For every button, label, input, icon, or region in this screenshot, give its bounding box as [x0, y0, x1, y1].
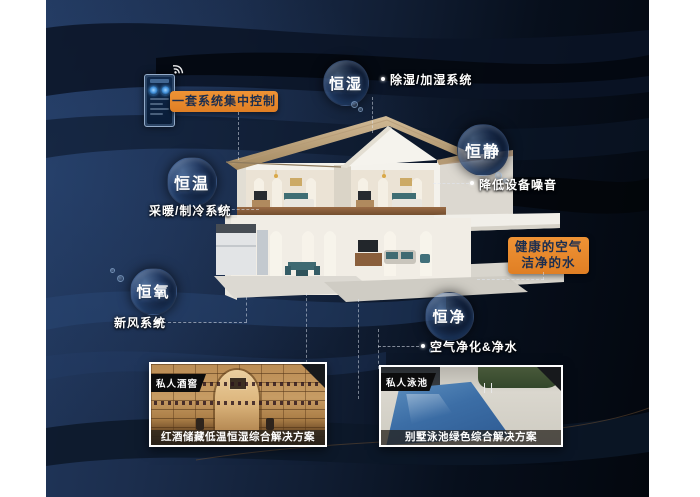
- wine-card-caption: 红酒储藏低温恒湿综合解决方案: [151, 430, 325, 445]
- bubble-label: 恒温: [174, 170, 210, 194]
- callout-purify: 空气净化&净水: [430, 338, 518, 355]
- pool-ladder: [484, 383, 492, 393]
- connector-line: [378, 329, 379, 369]
- connector-line: [433, 183, 469, 184]
- pool-card: 私人泳池 别墅泳池绿色综合解决方案: [379, 365, 563, 447]
- clean-water-line: 洁净的水: [508, 255, 589, 271]
- central-control-highlight: 一套系统集中控制: [170, 91, 278, 112]
- connector-line: [246, 297, 247, 322]
- pool-photo: 私人泳池 别墅泳池绿色综合解决方案: [381, 367, 561, 445]
- bubble-label: 恒湿: [329, 73, 363, 94]
- house-cutaway-illustration: [206, 108, 576, 323]
- connector-line: [358, 299, 359, 399]
- callout-noise: 降低设备噪音: [479, 176, 557, 193]
- connector-line: [372, 97, 373, 133]
- mini-bubble: [110, 268, 115, 273]
- pool-card-caption: 别墅泳池绿色综合解决方案: [381, 430, 561, 445]
- corner-ribbon: [537, 367, 561, 391]
- bubble-constant-purity: 恒净: [425, 292, 474, 341]
- callout-dehumidify: 除湿/加湿系统: [390, 71, 472, 88]
- wine-bottle-row: [154, 401, 321, 405]
- wine-cellar-photo: 私人酒窖 红酒储藏低温恒湿综合解决方案: [151, 364, 325, 445]
- connector-line: [477, 279, 544, 280]
- mini-bubble: [117, 275, 124, 282]
- bubble-constant-temperature: 恒温: [167, 157, 217, 207]
- bubble-label: 恒净: [432, 306, 466, 327]
- corner-ribbon: [301, 364, 325, 388]
- bubble-label: 恒氧: [136, 281, 170, 302]
- connector-line: [227, 209, 259, 210]
- phone-text-row: [150, 108, 169, 110]
- poster-stage: 一套系统集中控制 健康的空气 洁净的水 恒湿 恒静 恒温 恒氧 恒净 除湿/加湿…: [46, 0, 649, 497]
- phone-knob-left: [149, 86, 158, 95]
- phone-knob-right: [161, 86, 170, 95]
- connector-line: [378, 346, 419, 347]
- mini-bubble: [351, 101, 358, 108]
- bubble-label: 恒静: [465, 138, 501, 162]
- mini-bubble: [358, 107, 363, 112]
- phone-text-row: [150, 103, 163, 105]
- bubble-constant-quiet: 恒静: [457, 124, 509, 176]
- callout-bullet: [381, 77, 385, 81]
- wine-cellar-card: 私人酒窖 红酒储藏低温恒湿综合解决方案: [149, 362, 327, 447]
- callout-bullet: [156, 320, 160, 324]
- phone-screen: [147, 77, 172, 124]
- callout-bullet: [421, 344, 425, 348]
- callout-bullet: [470, 181, 474, 185]
- bubble-constant-humidity: 恒湿: [323, 60, 369, 106]
- connector-line: [163, 322, 247, 323]
- healthy-air-line: 健康的空气: [508, 239, 589, 255]
- healthy-air-water-highlight: 健康的空气 洁净的水: [508, 237, 589, 274]
- phone-text-row: [150, 113, 163, 115]
- connector-line: [306, 293, 307, 363]
- pool-card-badge: 私人泳池: [381, 373, 436, 391]
- connector-line: [238, 112, 239, 160]
- bubble-constant-oxygen: 恒氧: [130, 268, 177, 315]
- poster-canvas: 一套系统集中控制 健康的空气 洁净的水 恒湿 恒静 恒温 恒氧 恒净 除湿/加湿…: [0, 0, 700, 497]
- wine-stool: [196, 418, 204, 430]
- callout-bullet: [218, 207, 222, 211]
- phone-text-row: [150, 98, 169, 100]
- wine-stool: [266, 418, 274, 430]
- phone-header-bar: [150, 79, 169, 83]
- wine-card-badge: 私人酒窖: [151, 374, 206, 392]
